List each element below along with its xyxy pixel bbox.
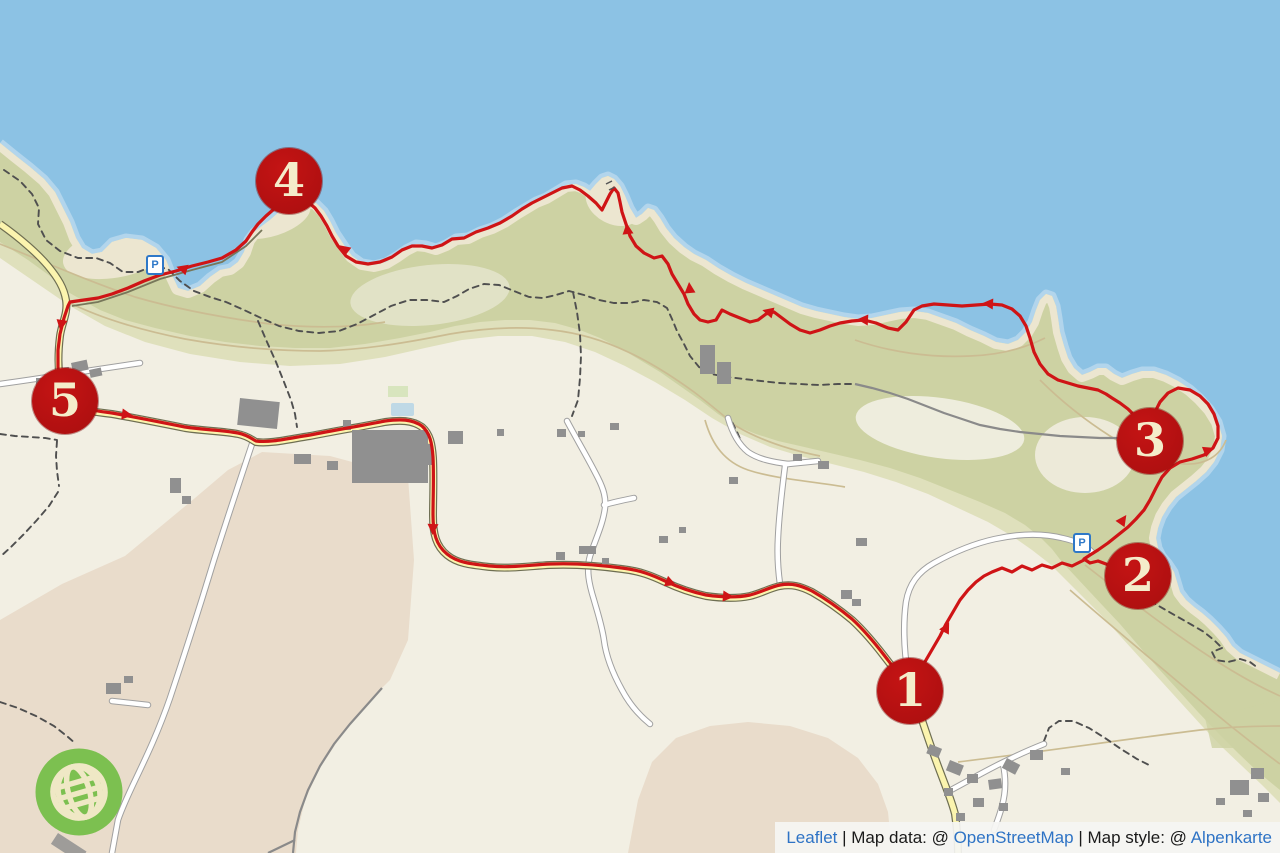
waypoint-label: 1	[894, 667, 926, 716]
waypoint-label: 5	[49, 377, 81, 426]
map-style-label: Map style: @	[1087, 828, 1190, 847]
alpenkarte-link[interactable]: Alpenkarte	[1191, 828, 1272, 847]
waypoint-label: 3	[1134, 417, 1166, 466]
map-data-label: Map data: @	[851, 828, 953, 847]
green-patch	[388, 386, 408, 397]
parking-icon: P	[1073, 533, 1091, 553]
leaflet-link[interactable]: Leaflet	[786, 828, 837, 847]
map-canvas[interactable]: 1 2 3 4 5 P P Leaflet | Map data: @ Open…	[0, 0, 1280, 853]
separator: |	[837, 828, 851, 847]
separator: |	[1074, 828, 1088, 847]
map-tiles	[0, 0, 1280, 853]
waypoint-label: 2	[1122, 552, 1154, 601]
openstreetmap-link[interactable]: OpenStreetMap	[954, 828, 1074, 847]
globe-logo	[31, 744, 127, 840]
pond	[391, 403, 414, 416]
parking-icon: P	[146, 255, 164, 275]
waypoint-marker-5[interactable]: 5	[32, 368, 98, 434]
waypoint-marker-4[interactable]: 4	[256, 148, 322, 214]
waypoint-marker-3[interactable]: 3	[1117, 408, 1183, 474]
waypoint-marker-1[interactable]: 1	[877, 658, 943, 724]
waypoint-marker-2[interactable]: 2	[1105, 543, 1171, 609]
attribution-bar: Leaflet | Map data: @ OpenStreetMap | Ma…	[775, 822, 1280, 853]
waypoint-label: 4	[273, 157, 305, 206]
